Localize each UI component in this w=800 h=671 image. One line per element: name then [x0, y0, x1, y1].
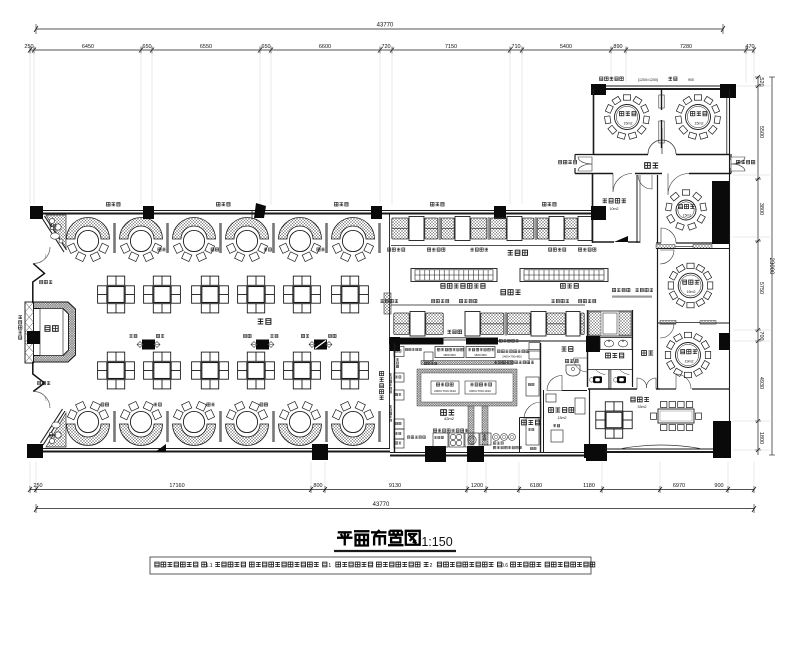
svg-text:2: 2	[430, 563, 433, 569]
svg-text:6970: 6970	[673, 483, 685, 489]
svg-text:6450: 6450	[82, 44, 94, 50]
svg-text:5400: 5400	[560, 44, 572, 50]
svg-text:250: 250	[33, 483, 42, 489]
svg-text:9130: 9130	[389, 483, 401, 489]
svg-text:1200: 1200	[471, 483, 483, 489]
svg-text:6600: 6600	[319, 44, 331, 50]
svg-text:2000×700×1910: 2000×700×1910	[469, 389, 491, 393]
svg-text:15m2: 15m2	[624, 122, 633, 126]
svg-text:15m2: 15m2	[695, 122, 704, 126]
svg-text:5750: 5750	[758, 282, 764, 294]
svg-text:15m2: 15m2	[683, 214, 692, 218]
svg-text:710: 710	[511, 44, 520, 50]
svg-text:42m2: 42m2	[444, 416, 455, 421]
svg-text:17160: 17160	[169, 483, 184, 489]
svg-text:(1200×1200): (1200×1200)	[638, 78, 658, 82]
svg-text:10m2: 10m2	[610, 207, 619, 211]
svg-text:2000×700×1910: 2000×700×1910	[434, 389, 456, 393]
svg-text:650: 650	[261, 44, 270, 50]
svg-text:6180: 6180	[530, 483, 542, 489]
svg-text:900: 900	[714, 483, 723, 489]
svg-text:13m2: 13m2	[558, 416, 567, 420]
svg-text:7150: 7150	[445, 44, 457, 50]
svg-text:800: 800	[313, 483, 322, 489]
svg-text:1800: 1800	[758, 432, 764, 444]
svg-text:5500: 5500	[758, 126, 764, 138]
svg-text:250: 250	[24, 44, 33, 50]
svg-text:1:150: 1:150	[421, 535, 452, 549]
svg-text:470: 470	[745, 44, 754, 50]
svg-text:33m2: 33m2	[638, 405, 647, 409]
svg-text:23000: 23000	[768, 258, 774, 275]
svg-text:19m2: 19m2	[685, 360, 694, 364]
svg-text:43770: 43770	[377, 23, 394, 29]
svg-text:900: 900	[688, 78, 694, 82]
svg-text:700: 700	[758, 331, 764, 340]
svg-text:650: 650	[142, 44, 151, 50]
svg-text:720: 720	[381, 44, 390, 50]
svg-text:3800: 3800	[758, 203, 764, 215]
svg-text:0.6: 0.6	[501, 563, 508, 569]
svg-text:1180: 1180	[583, 483, 595, 489]
svg-text:1800×800: 1800×800	[443, 353, 456, 357]
svg-text:890: 890	[613, 44, 622, 50]
svg-text:520: 520	[758, 77, 764, 86]
svg-text:1: 1	[328, 563, 331, 569]
svg-text:6550: 6550	[200, 44, 212, 50]
svg-text:43770: 43770	[373, 502, 390, 508]
svg-text:1800×800: 1800×800	[474, 353, 487, 357]
svg-text:4930: 4930	[758, 377, 764, 389]
svg-text:2400×700×800: 2400×700×800	[502, 355, 522, 359]
svg-text:19m2: 19m2	[687, 290, 696, 294]
svg-text:1.1: 1.1	[206, 563, 213, 569]
svg-text:7280: 7280	[680, 44, 692, 50]
